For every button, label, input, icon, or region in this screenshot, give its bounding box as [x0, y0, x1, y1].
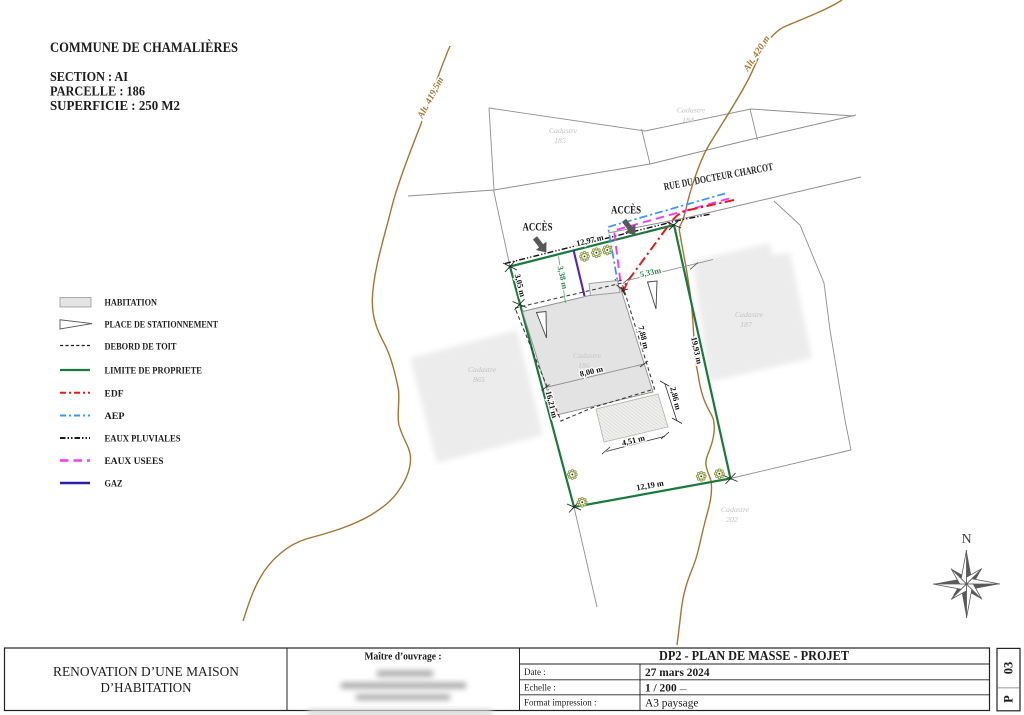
svg-text:SUPERFICIE : 250 M2: SUPERFICIE : 250 M2	[50, 99, 180, 114]
svg-text:EAUX USEES: EAUX USEES	[105, 457, 164, 467]
svg-text:RUE DU DOCTEUR CHARCOT: RUE DU DOCTEUR CHARCOT	[663, 162, 774, 193]
svg-text:D’HABITATION: D’HABITATION	[101, 680, 192, 695]
svg-text:Date :: Date :	[524, 667, 546, 677]
svg-text:PARCELLE : 186: PARCELLE : 186	[50, 85, 145, 100]
svg-text:03: 03	[1002, 662, 1016, 675]
svg-text:Cadastre: Cadastre	[735, 310, 764, 319]
svg-text:EAUX PLUVIALES: EAUX PLUVIALES	[105, 435, 181, 445]
svg-text:184: 184	[682, 116, 694, 125]
svg-text:5,33m: 5,33m	[639, 266, 662, 279]
svg-text:PLACE DE STATIONNEMENT: PLACE DE STATIONNEMENT	[105, 321, 219, 331]
svg-text:Cadastre: Cadastre	[549, 126, 578, 135]
svg-text:SECTION : AI: SECTION : AI	[50, 70, 128, 85]
svg-text:202: 202	[726, 515, 738, 524]
svg-text:ACCÈS: ACCÈS	[523, 222, 553, 234]
svg-text:Cadastre: Cadastre	[721, 505, 750, 514]
svg-text:COMMUNE DE CHAMALIÈRES: COMMUNE DE CHAMALIÈRES	[50, 39, 238, 56]
svg-text:27 mars 2024: 27 mars 2024	[645, 667, 710, 679]
svg-text:Echelle :: Echelle :	[524, 683, 556, 693]
svg-text:Cadastre: Cadastre	[677, 106, 706, 115]
svg-text:DEBORD DE TOIT: DEBORD DE TOIT	[105, 343, 178, 353]
svg-text:19,93 m: 19,93 m	[689, 336, 704, 365]
svg-text:865: 865	[473, 375, 485, 384]
svg-text:Alt. 419,5m: Alt. 419,5m	[416, 76, 446, 121]
svg-text:ACCÈS: ACCÈS	[611, 205, 641, 217]
svg-text:AEP: AEP	[105, 412, 125, 422]
svg-text:Alt. 420 m: Alt. 420 m	[742, 34, 773, 74]
svg-text:DP2 - PLAN DE MASSE - PROJET: DP2 - PLAN DE MASSE - PROJET	[659, 648, 849, 663]
svg-text:GAZ: GAZ	[105, 480, 123, 490]
svg-text:N: N	[961, 532, 971, 547]
svg-text:Cadastre: Cadastre	[573, 351, 602, 360]
svg-text:Format impression :: Format impression :	[524, 698, 597, 708]
svg-text:RENOVATION D’UNE MAISON: RENOVATION D’UNE MAISON	[53, 664, 239, 679]
svg-text:HABITATION: HABITATION	[105, 299, 158, 309]
svg-text:2,86 m: 2,86 m	[668, 386, 682, 411]
svg-text:Maître d’ouvrage :: Maître d’ouvrage :	[365, 652, 442, 663]
svg-text:185: 185	[554, 136, 566, 145]
svg-text:187: 187	[740, 320, 753, 329]
svg-text:EDF: EDF	[105, 390, 124, 400]
svg-text:Cadastre: Cadastre	[468, 365, 497, 374]
svg-text:LIMITE DE PROPRIETE: LIMITE DE PROPRIETE	[105, 367, 203, 377]
svg-text:P: P	[1002, 695, 1016, 703]
svg-text:A3 paysage: A3 paysage	[645, 698, 698, 710]
svg-text:3,38 m: 3,38 m	[556, 265, 570, 290]
